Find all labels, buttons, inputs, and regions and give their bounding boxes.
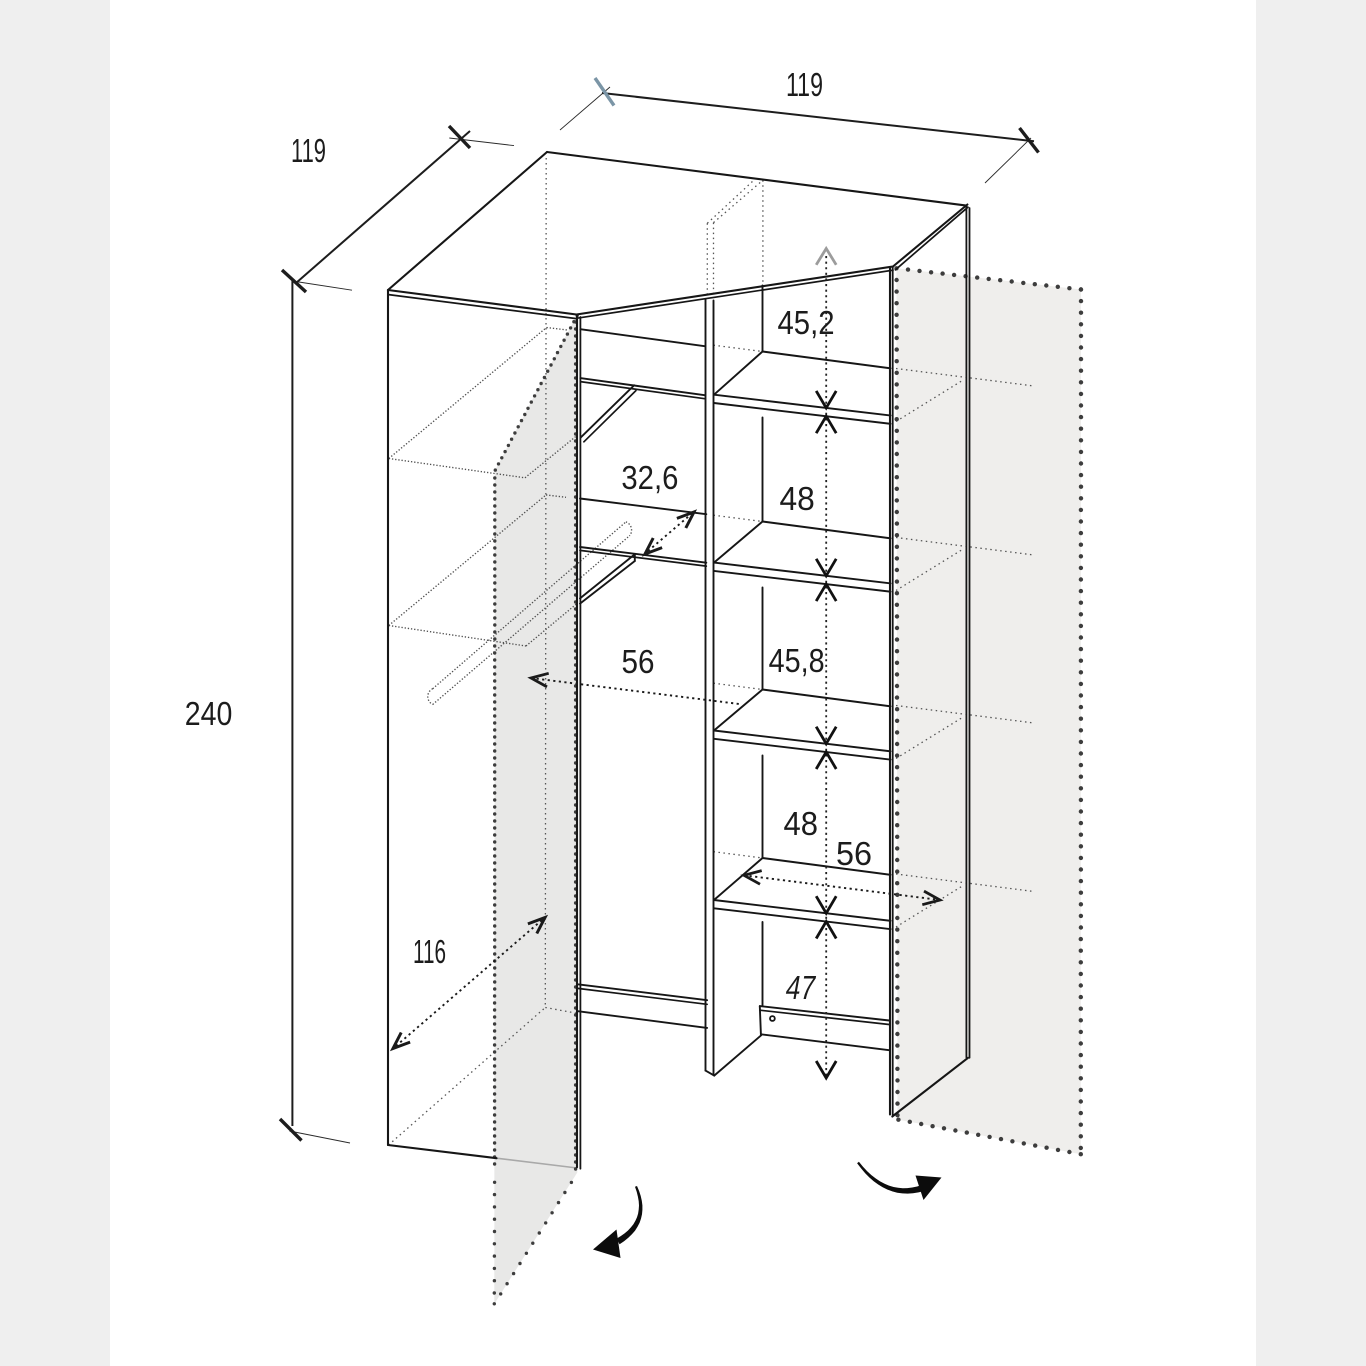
svg-text:48: 48 bbox=[784, 806, 819, 843]
svg-text:56: 56 bbox=[836, 836, 872, 873]
svg-text:116: 116 bbox=[413, 934, 446, 971]
svg-text:119: 119 bbox=[786, 67, 823, 104]
svg-text:56: 56 bbox=[622, 644, 655, 681]
svg-text:45,2: 45,2 bbox=[778, 305, 835, 342]
svg-text:119: 119 bbox=[291, 133, 326, 170]
svg-text:32,6: 32,6 bbox=[621, 460, 678, 497]
svg-text:240: 240 bbox=[185, 696, 233, 733]
svg-text:48: 48 bbox=[780, 481, 815, 518]
svg-text:45,8: 45,8 bbox=[769, 643, 825, 680]
